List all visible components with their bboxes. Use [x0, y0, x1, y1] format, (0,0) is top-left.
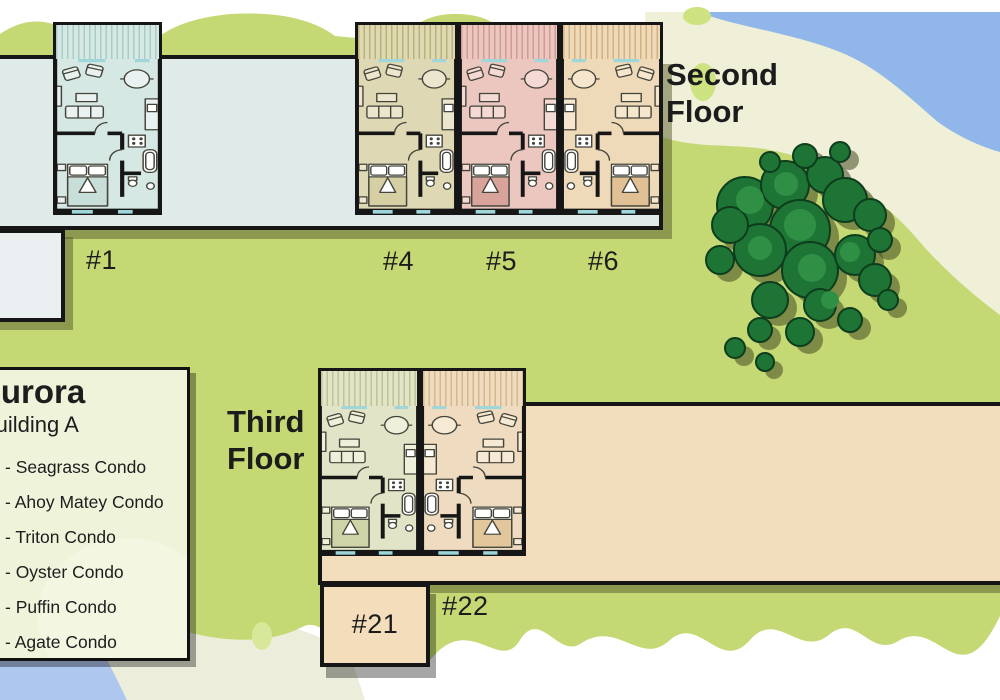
balcony-unit-5 — [458, 22, 560, 62]
balcony-unit-22 — [420, 368, 526, 409]
unit-label-4: #4 — [383, 246, 414, 277]
legend-list: - Seagrass Condo - Ahoy Matey Condo - Tr… — [0, 450, 187, 660]
floor-plan-unit-5[interactable] — [458, 59, 560, 215]
balcony-unit-21 — [318, 368, 420, 409]
floor-plan-unit-21[interactable] — [318, 406, 420, 556]
balcony-unit-4 — [355, 22, 458, 62]
legend-title: Aurora — [0, 374, 187, 410]
unit-label-5: #5 — [486, 246, 517, 277]
legend-item: - Oyster Condo — [5, 555, 187, 590]
floor-plan-unit-1[interactable] — [53, 59, 162, 215]
sand-grass-blob — [252, 622, 272, 650]
floor-plan-unit-4[interactable] — [355, 59, 458, 215]
unit-label-6: #6 — [588, 246, 619, 277]
legend-item: - Ahoy Matey Condo — [5, 485, 187, 520]
third-floor-title: Third Floor — [227, 403, 322, 477]
unit-21-label-box[interactable]: #21 — [320, 583, 430, 667]
building-second-floor-wing — [0, 229, 65, 322]
legend-item: - Seagrass Condo — [5, 450, 187, 485]
balcony-unit-6 — [560, 22, 663, 62]
legend-item: - Triton Condo — [5, 520, 187, 555]
second-floor-title: Second Floor — [666, 56, 836, 130]
legend-item: - Agate Condo — [5, 625, 187, 660]
floor-plan-unit-22[interactable] — [420, 406, 526, 556]
legend-box: Aurora Building A - Seagrass Condo - Aho… — [0, 367, 190, 661]
legend-item: - Puffin Condo — [5, 590, 187, 625]
legend-subtitle: Building A — [0, 412, 187, 438]
floor-plan-unit-6[interactable] — [560, 59, 663, 215]
site-map: #21 Second Floor Third Floor #1 #4 #5 #6… — [0, 0, 1000, 700]
unit-label-21: #21 — [352, 609, 399, 640]
unit-label-22: #22 — [442, 591, 489, 622]
unit-label-1: #1 — [86, 245, 117, 276]
balcony-unit-1 — [53, 22, 162, 62]
sand-grass-blob — [683, 7, 711, 25]
